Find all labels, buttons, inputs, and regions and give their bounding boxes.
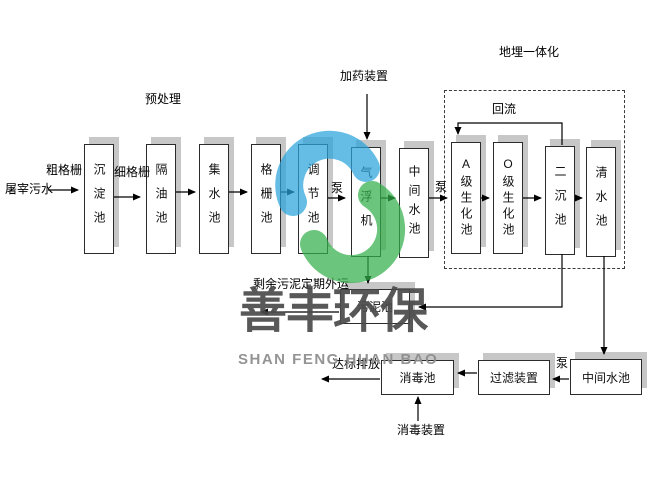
tank-disinfection-label: 消毒池	[399, 369, 435, 386]
discharge-label: 达标排放	[332, 358, 380, 371]
tank-a-biochemical-label: A级生化池	[460, 157, 472, 239]
pump-label-2: 泵	[435, 181, 447, 194]
tank-intermediate: 中间水池	[399, 148, 429, 258]
tank-collecting-label: 集水池	[208, 163, 220, 235]
reflux-label: 回流	[492, 103, 516, 116]
pump-label-1: 泵	[331, 182, 343, 195]
air-flotation-machine: 气浮机	[351, 147, 381, 257]
tank-o-biochemical: O级生化池	[493, 142, 523, 254]
process-flow-diagram: 沉淀池 隔油池 集水池 格栅池 调节池 气浮机 中间水池 A级生化池 O级生化池…	[0, 0, 650, 500]
disinfect-device-label: 消毒装置	[397, 424, 445, 437]
tank-clean-water: 清水池	[586, 147, 616, 257]
pump-label-3: 泵	[556, 357, 568, 370]
buried-integration-label: 地埋一体化	[499, 46, 559, 59]
tank-grid-label: 格栅池	[260, 163, 272, 235]
tank-secondary-sedimentation: 二沉池	[545, 146, 575, 255]
tank-sludge: 污泥池	[340, 289, 410, 324]
tank-regulating: 调节池	[298, 144, 328, 254]
tank-a-biochemical: A级生化池	[451, 142, 481, 254]
tank-grid: 格栅池	[251, 144, 281, 254]
fine-screen-label: 细格栅	[114, 166, 150, 179]
tank-clean-water-label: 清水池	[595, 166, 607, 238]
tank-oil-separation: 隔油池	[146, 144, 176, 254]
tank-intermediate-2-label: 中间水池	[582, 369, 630, 386]
tank-disinfection: 消毒池	[381, 360, 454, 395]
tank-o-biochemical-label: O级生化池	[502, 157, 514, 239]
pretreatment-label: 预处理	[145, 93, 181, 106]
filter-device-label: 过滤装置	[490, 369, 538, 386]
air-flotation-machine-label: 气浮机	[360, 166, 372, 238]
tank-intermediate-label: 中间水池	[408, 165, 420, 241]
tank-oil-separation-label: 隔油池	[155, 163, 167, 235]
dosing-device-label: 加药装置	[340, 70, 388, 83]
tank-sludge-label: 污泥池	[357, 298, 393, 315]
filter-device: 过滤装置	[478, 360, 550, 395]
source-label: 屠宰污水	[5, 183, 53, 196]
coarse-screen-label: 粗格栅	[46, 164, 82, 177]
tank-secondary-sedimentation-label: 二沉池	[554, 165, 566, 237]
tank-regulating-label: 调节池	[307, 163, 319, 235]
sludge-out-label: 剩余污泥定期外运	[253, 278, 349, 291]
tank-intermediate-2: 中间水池	[570, 359, 642, 395]
tank-collecting: 集水池	[199, 144, 229, 254]
tank-sedimentation-label: 沉淀池	[93, 163, 105, 235]
tank-sedimentation: 沉淀池	[84, 144, 114, 254]
